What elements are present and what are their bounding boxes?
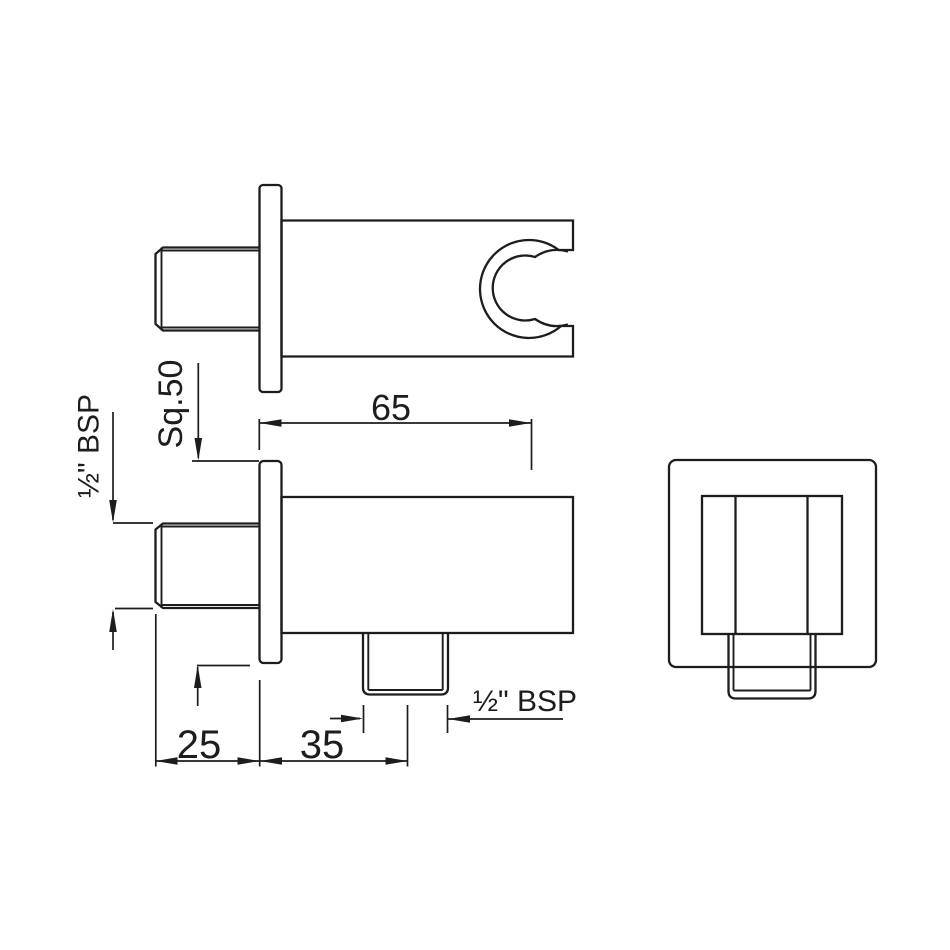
top-view	[156, 185, 574, 392]
dimension-inlet-bsp: ½" BSP	[73, 394, 154, 650]
dim-inlet-bsp-label: ½" BSP	[73, 394, 106, 498]
dim-inlet-bsp-arrow-down	[109, 500, 117, 523]
front-view-outlet-thread-lines	[368, 633, 442, 690]
shower-outlet-dimension-drawing: 65 Sq.50 ½" BSP 25 35 ½" BSP	[0, 0, 950, 950]
dimension-sq50: Sq.50	[152, 360, 259, 706]
technical-drawing-page: 65 Sq.50 ½" BSP 25 35 ½" BSP	[0, 0, 950, 950]
top-view-inlet-nipple	[156, 248, 261, 331]
front-view-outlet-nipple	[363, 633, 448, 695]
top-view-inlet-thread-lines	[162, 248, 261, 331]
dimension-outlet-bsp: ½" BSP	[330, 685, 577, 733]
top-view-wall-flange	[260, 185, 282, 392]
dim-35-label: 35	[300, 723, 345, 767]
dim-sq50-label: Sq.50	[152, 360, 190, 449]
dim-outlet-bsp-label: ½" BSP	[473, 685, 577, 718]
end-view-wall-flange-square	[669, 460, 876, 667]
dim-35-arrow-left	[260, 757, 282, 765]
dim-25-arrow-right	[238, 757, 260, 765]
front-view-inlet-thread-lines	[162, 524, 261, 609]
end-view-outlet-thread-lines	[734, 634, 811, 691]
dim-outlet-bsp-arrow-left	[448, 715, 470, 723]
top-view-holder-inner-arc	[493, 250, 568, 326]
front-view-inlet-nipple	[156, 524, 261, 609]
dimension-65: 65	[259, 387, 531, 470]
dim-sq50-lines	[192, 363, 259, 706]
dim-sq50-arrow-up	[194, 665, 202, 688]
front-view-body	[282, 497, 574, 633]
end-view-holder-edges	[736, 496, 808, 634]
dim-sq50-arrow-down	[195, 438, 203, 461]
dim-35-arrow-right	[386, 757, 408, 765]
top-view-body-with-holder-notch	[282, 221, 574, 357]
dim-inlet-bsp-lines	[113, 412, 153, 650]
end-view	[669, 460, 876, 699]
dim-inlet-bsp-arrow-up	[109, 609, 117, 632]
dim-65-arrow-left	[260, 419, 282, 427]
dim-25-label: 25	[177, 723, 222, 767]
dim-25-arrow-left	[156, 757, 178, 765]
dim-outlet-bsp-arrow-right	[341, 715, 363, 723]
front-view	[156, 461, 574, 695]
dim-65-arrow-right	[509, 419, 531, 427]
front-view-wall-flange	[260, 461, 282, 663]
dim-65-label: 65	[371, 387, 411, 428]
end-view-body-square	[702, 496, 842, 634]
